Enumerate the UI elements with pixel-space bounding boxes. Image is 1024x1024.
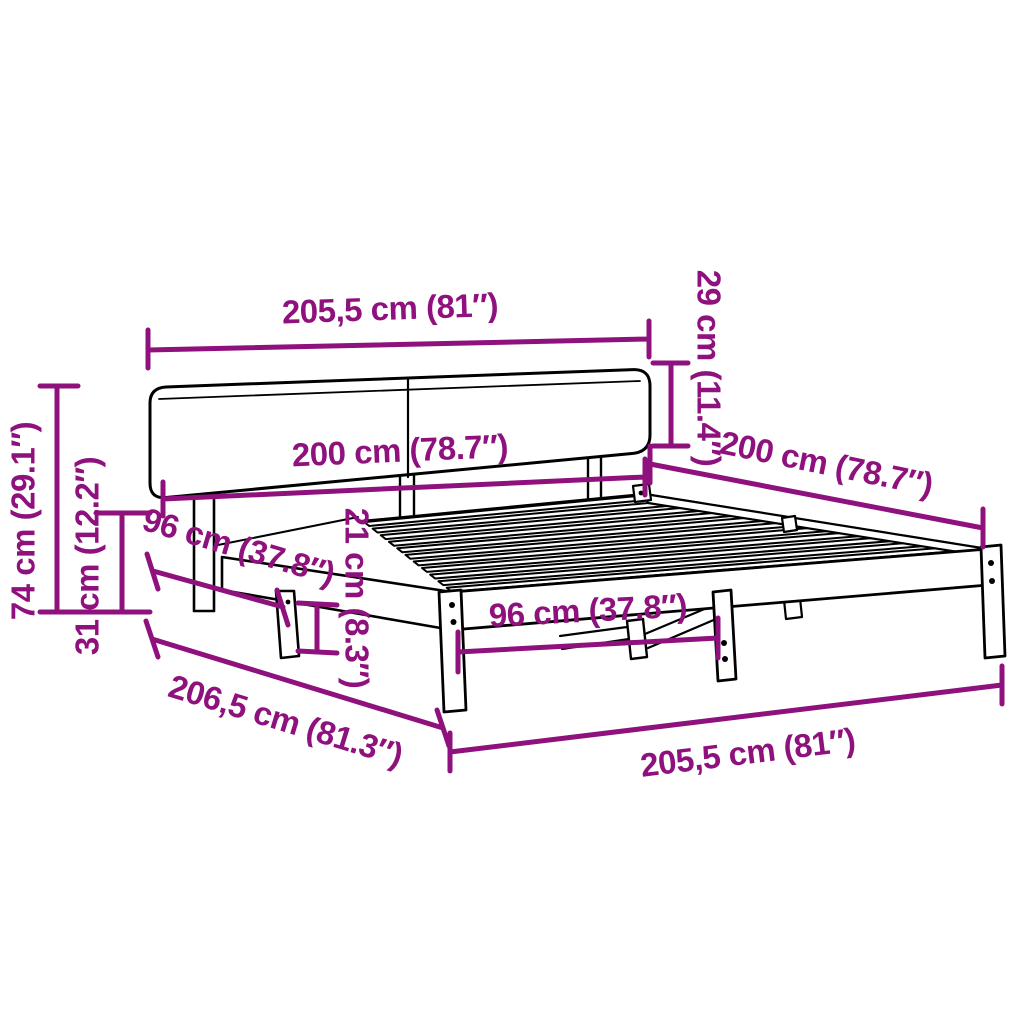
dim-headboard-panel-height: 29 cm (11.4″): [653, 270, 727, 466]
dim-base-height: 31 cm (12.2″): [69, 457, 150, 655]
dim-label-total-height: 74 cm (29.1″): [5, 422, 42, 620]
dim-label-headboard-width-top: 205,5 cm (81″): [281, 286, 498, 331]
dim-label-rail-height: 21 cm (8.3″): [338, 508, 375, 688]
dim-label-bed-length-right: 200 cm (78.7″): [717, 424, 936, 503]
dim-total-width-bottom: 205,5 cm (81″): [450, 666, 1002, 784]
slat-holder-tab: [782, 516, 797, 532]
dim-headboard-width-top: 205,5 cm (81″): [148, 286, 649, 368]
dim-front-leg-spacing: 96 cm (37.8″): [458, 587, 718, 672]
dimension-diagram: 205,5 cm (81″) 29 cm (11.4″) 200 cm (78.…: [0, 0, 1024, 1024]
bed-frame-diagram-canvas: 205,5 cm (81″) 29 cm (11.4″) 200 cm (78.…: [0, 0, 1024, 1024]
headboard-post-center: [400, 471, 414, 519]
dim-label-base-height: 31 cm (12.2″): [69, 457, 106, 655]
dim-label-total-width-bottom: 205,5 cm (81″): [638, 721, 857, 784]
